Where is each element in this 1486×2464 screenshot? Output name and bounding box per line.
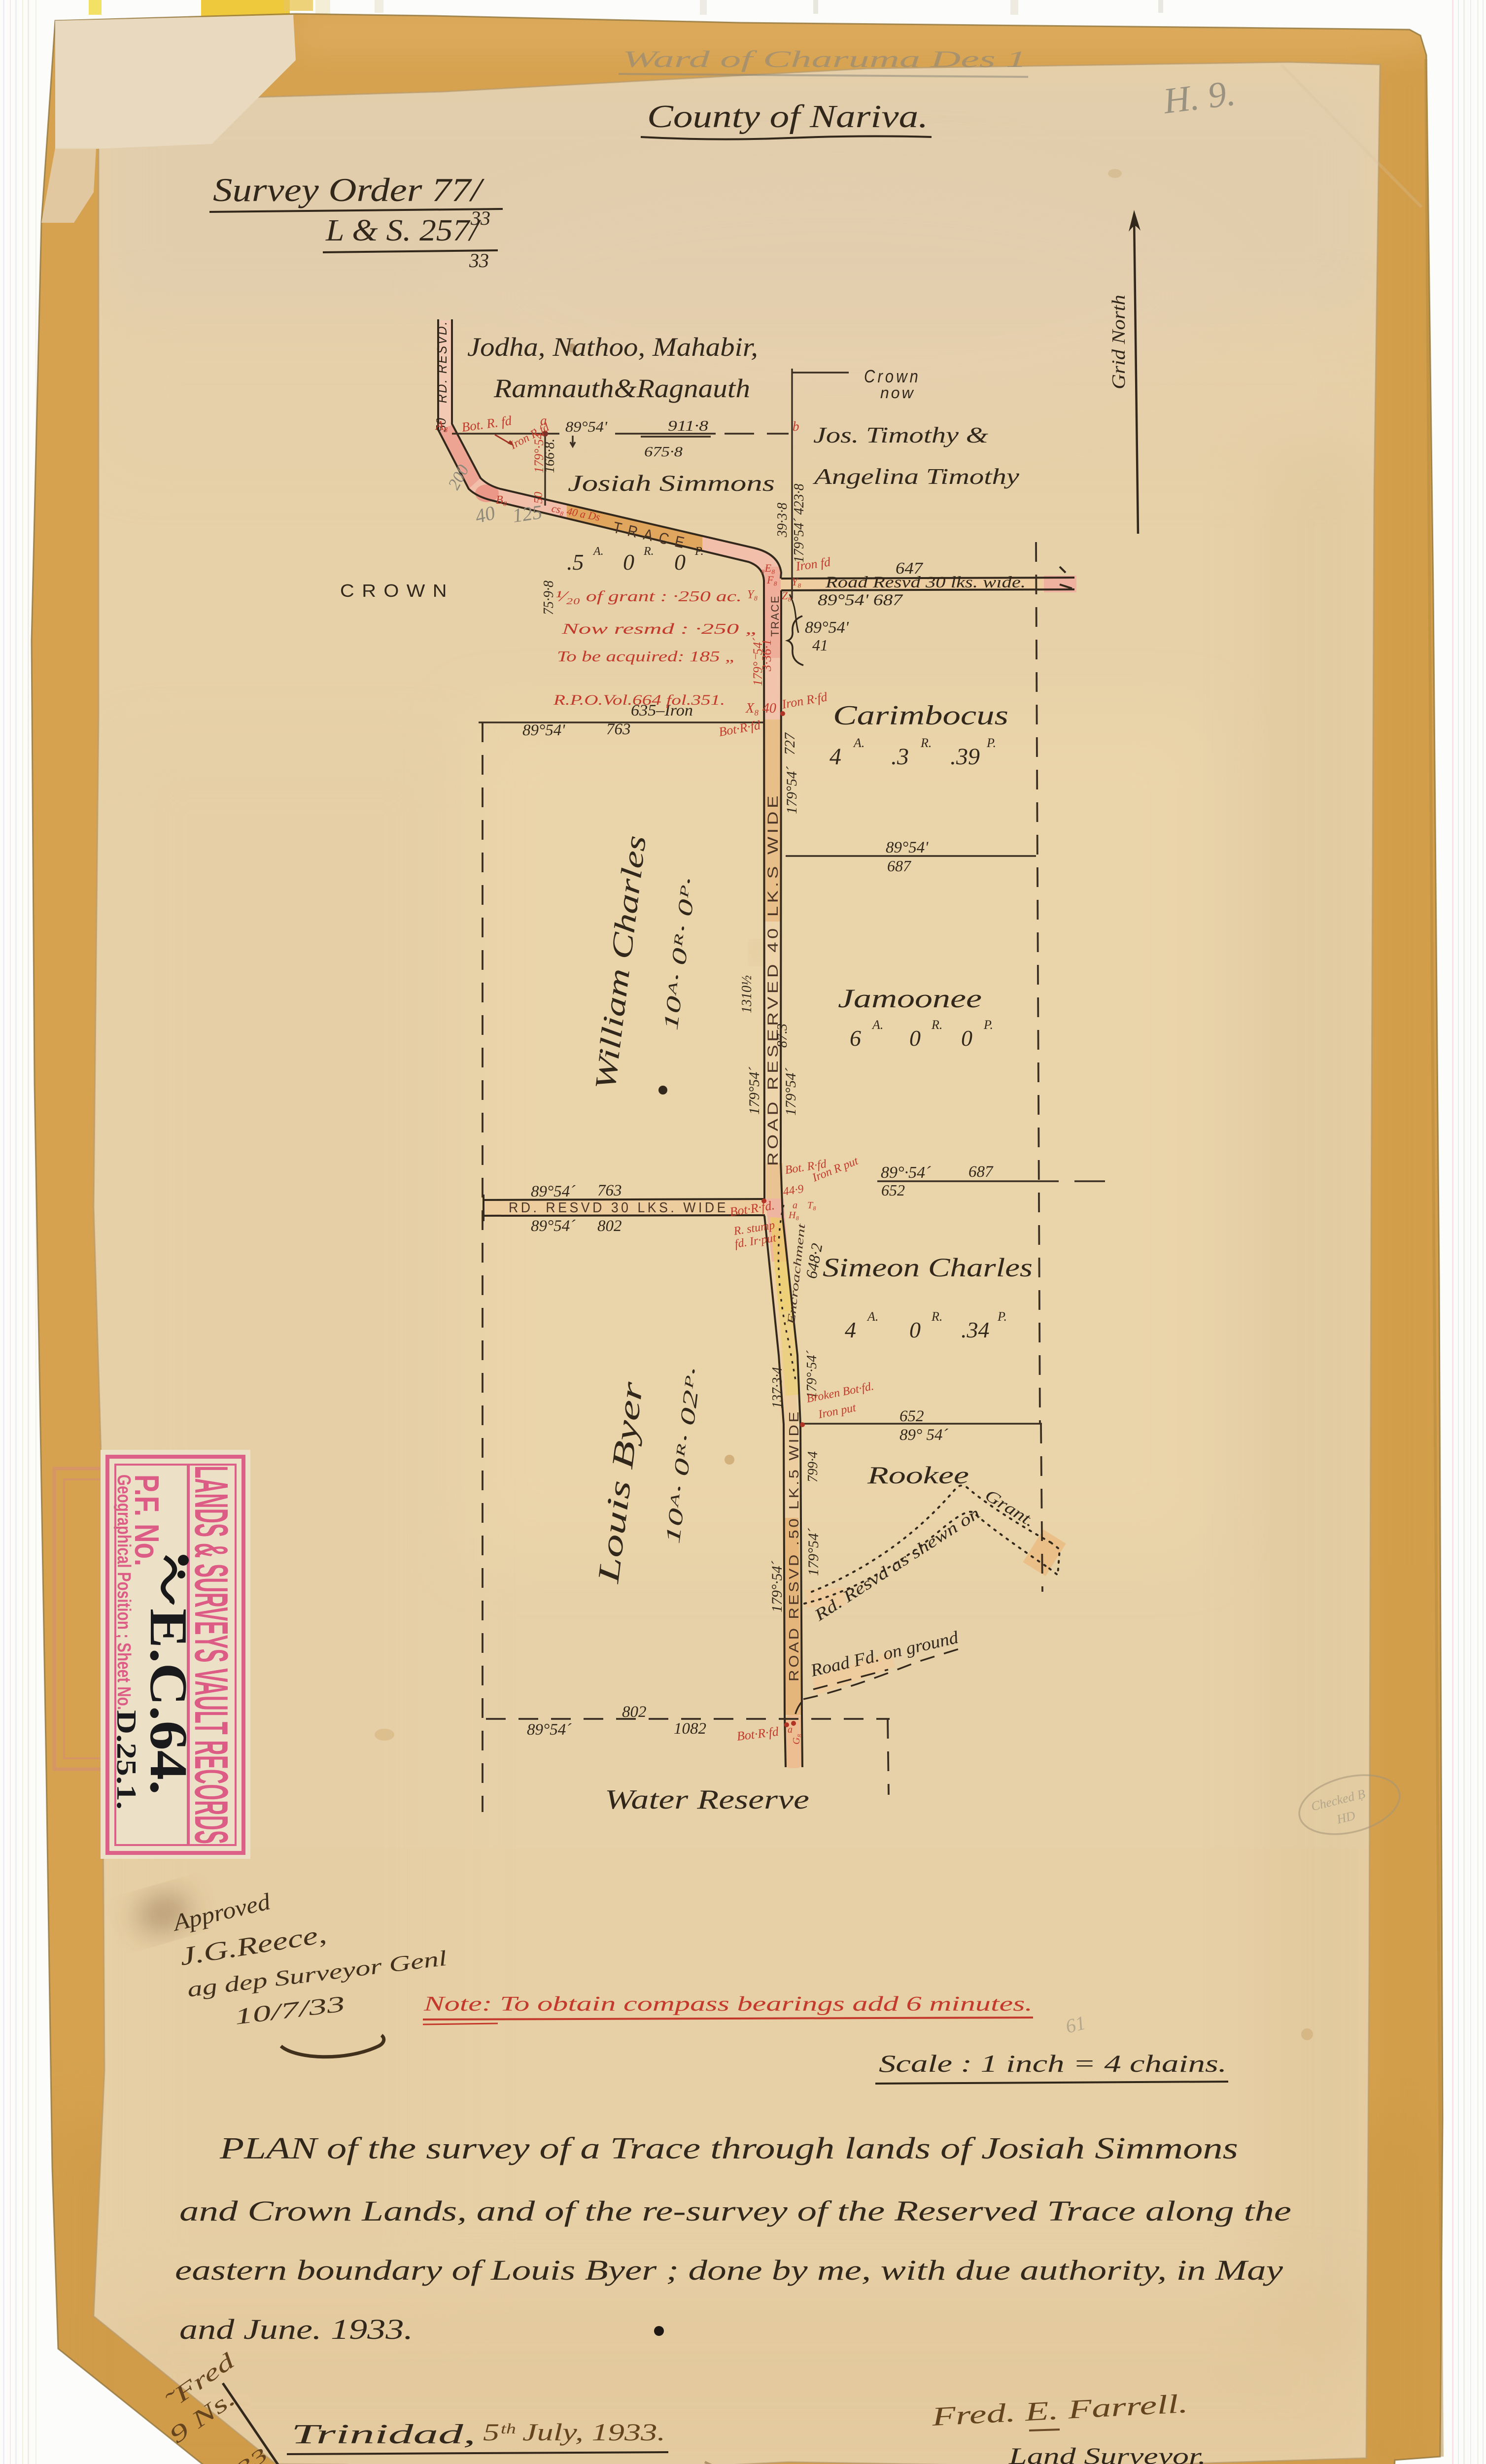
svg-text:R.: R.: [931, 1309, 942, 1324]
svg-text:727: 727: [782, 732, 798, 755]
svg-text:89° 54´: 89° 54´: [899, 1426, 948, 1444]
svg-text:A.: A.: [853, 736, 864, 750]
svg-text:R.: R.: [931, 1018, 942, 1032]
svg-text:41: 41: [812, 636, 828, 654]
svg-text:Jos. Timothy &: Jos. Timothy &: [813, 423, 988, 447]
svg-text:Grid North: Grid North: [1108, 295, 1129, 389]
svg-text:Survey Order 77/: Survey Order 77/: [213, 171, 485, 208]
svg-text:179°54´: 179°54´: [784, 766, 800, 814]
svg-text:.39: .39: [950, 744, 980, 770]
svg-text:Rookee: Rookee: [867, 1461, 969, 1489]
svg-text:0: 0: [674, 549, 686, 575]
svg-text:89°54' 687: 89°54' 687: [818, 591, 903, 609]
svg-text:75·9·8: 75·9·8: [541, 581, 556, 615]
svg-text:179°54´: 179°54´: [746, 1066, 762, 1115]
svg-text:89°54': 89°54': [886, 839, 929, 856]
svg-text:G₈: G₈: [791, 1734, 802, 1745]
svg-text:6: 6: [850, 1026, 861, 1051]
svg-text:A.: A.: [871, 1018, 883, 1032]
svg-text:a: a: [788, 1724, 793, 1735]
svg-text:89°54': 89°54': [522, 721, 565, 739]
svg-text:652: 652: [881, 1181, 905, 1199]
svg-text:P.: P.: [997, 1309, 1007, 1324]
svg-text:TRACE: TRACE: [769, 595, 781, 637]
svg-text:89°54´: 89°54´: [527, 1721, 572, 1739]
svg-text:B₈: B₈: [496, 494, 507, 507]
svg-text:89°·54´: 89°·54´: [881, 1164, 931, 1182]
svg-text:R.P.O.Vol.664 fol.351.: R.P.O.Vol.664 fol.351.: [553, 692, 725, 708]
svg-text:Note: To obtain compass bearin: Note: To obtain compass bearings add 6 m…: [423, 1993, 1033, 2016]
svg-text:39·3·8: 39·3·8: [775, 503, 790, 538]
svg-text:L & S. 257/: L & S. 257/: [325, 214, 481, 247]
svg-text:0: 0: [623, 549, 634, 575]
svg-text:4: 4: [845, 1317, 856, 1342]
svg-text:a: a: [793, 1200, 797, 1211]
svg-text:687: 687: [887, 857, 912, 875]
svg-text:¹⁄₂₀ of grant : ·250 ac.: ¹⁄₂₀ of grant : ·250 ac.: [555, 587, 742, 605]
svg-text:Ramnauth⁠&⁠Ragnauth: Ramnauth⁠&⁠Ragnauth: [493, 374, 750, 403]
svg-text:89°54': 89°54': [805, 618, 849, 637]
svg-text:now: now: [880, 384, 915, 402]
svg-text:Y₈: Y₈: [792, 576, 801, 588]
svg-text:X₈ 40: X₈ 40: [745, 701, 776, 716]
svg-text:P.: P.: [694, 545, 704, 558]
svg-text:eastern boundary of Louis Byer: eastern boundary of Louis Byer ; done by…: [175, 2254, 1283, 2286]
svg-text:Trinidad,: Trinidad,: [291, 2419, 476, 2450]
svg-text:652: 652: [899, 1407, 924, 1425]
svg-text:A.: A.: [592, 545, 604, 558]
svg-text:Geographical Position ; Sheet: Geographical Position ; Sheet No.: [113, 1474, 134, 1710]
svg-text:Jamoonee: Jamoonee: [838, 984, 982, 1013]
svg-text:0: 0: [961, 1026, 972, 1051]
svg-text:Z₈: Z₈: [782, 589, 792, 602]
svg-text:A.: A.: [866, 1309, 878, 1324]
svg-text:1310½: 1310½: [739, 975, 755, 1013]
svg-text:179°54´: 179°54´: [805, 1528, 822, 1576]
svg-text:4: 4: [829, 744, 841, 770]
svg-text:₈E₈: ₈E₈: [761, 562, 775, 574]
svg-text:33: 33: [469, 249, 489, 272]
svg-text:.34: .34: [961, 1317, 990, 1342]
svg-text:To be acquired: 185 „: To be acquired: 185 „: [557, 648, 736, 665]
svg-text:1082: 1082: [674, 1720, 706, 1738]
svg-text:Crown: Crown: [864, 366, 921, 386]
svg-text:Water Reserve: Water Reserve: [605, 1784, 809, 1815]
svg-text:0: 0: [909, 1317, 921, 1342]
svg-text:763: 763: [597, 1182, 622, 1199]
svg-text:R.: R.: [920, 736, 932, 750]
svg-text:Ward of Charuma Des 1: Ward of Charuma Des 1: [622, 46, 1027, 72]
svg-text:675·8: 675·8: [644, 444, 683, 460]
svg-text:5ᵗʰ July, 1933.: 5ᵗʰ July, 1933.: [483, 2418, 665, 2446]
svg-text:T₈: T₈: [807, 1200, 816, 1211]
svg-text:.3: .3: [891, 744, 909, 770]
svg-text:125: 125: [511, 501, 544, 527]
svg-text:Y₈: Y₈: [747, 588, 758, 601]
svg-text:179°54´: 179°54´: [783, 1067, 799, 1116]
svg-text:A₈: A₈: [435, 418, 448, 433]
svg-text:RD. RESVD 30 LKS. WIDE: RD. RESVD 30 LKS. WIDE: [509, 1200, 728, 1216]
svg-text:Josiah Simmons: Josiah Simmons: [568, 471, 775, 496]
svg-text:P.: P.: [986, 736, 996, 750]
svg-text:Angelina Timothy: Angelina Timothy: [812, 464, 1019, 489]
svg-text:87.3: 87.3: [775, 1024, 790, 1048]
svg-text:.5: .5: [567, 549, 584, 575]
svg-text:179°54´ 423·8: 179°54´ 423·8: [792, 483, 807, 563]
svg-text:E.C.64.: E.C.64.: [139, 1608, 198, 1795]
svg-text:D.25.1.: D.25.1.: [111, 1710, 141, 1810]
svg-text:Now resmd : ·250 „: Now resmd : ·250 „: [561, 620, 759, 637]
svg-text:and Crown Lands, and of the re: and Crown Lands, and of the re-survey of…: [179, 2195, 1291, 2227]
svg-text:137·3·4: 137·3·4: [770, 1367, 785, 1408]
svg-text:799·4: 799·4: [805, 1451, 821, 1482]
svg-text:ROAD RESERVED 40 LK.S WIDE: ROAD RESERVED 40 LK.S WIDE: [765, 792, 781, 1166]
svg-text:H₈: H₈: [788, 1210, 799, 1221]
svg-text:RD. RESVD.: RD. RESVD.: [434, 320, 449, 403]
svg-text:179°⁻54´: 179°⁻54´: [751, 637, 765, 686]
svg-text:ROAD RESVD .50 LK.5 WIDE: ROAD RESVD .50 LK.5 WIDE: [786, 1409, 801, 1681]
svg-text:802: 802: [597, 1217, 622, 1235]
svg-text:89°54´: 89°54´: [531, 1183, 576, 1200]
svg-text:687: 687: [968, 1163, 994, 1181]
svg-text:179°·54´: 179°·54´: [532, 428, 546, 473]
svg-text:0: 0: [909, 1026, 921, 1051]
svg-text:Scale : 1 inch = 4 chains.: Scale : 1 inch = 4 chains.: [879, 2050, 1227, 2077]
svg-text:802: 802: [622, 1703, 647, 1721]
svg-text:Carimbocus: Carimbocus: [833, 700, 1008, 731]
svg-text:89°54´: 89°54´: [531, 1217, 576, 1235]
svg-text:P.: P.: [983, 1018, 993, 1032]
svg-text:F₈: F₈: [766, 574, 777, 586]
svg-text:763: 763: [606, 720, 631, 738]
svg-text:PLAN of the survey of a Trace: PLAN of the survey of a Trace through la…: [219, 2132, 1238, 2165]
svg-text:b: b: [793, 419, 799, 434]
svg-text:a: a: [540, 413, 547, 428]
svg-text:R.: R.: [643, 545, 654, 558]
svg-text:County of Nariva.: County of Nariva.: [647, 99, 928, 135]
svg-text:Land Surveyor.: Land Surveyor.: [1008, 2443, 1206, 2464]
svg-text:Simeon Charles: Simeon Charles: [823, 1253, 1033, 1282]
svg-text:89°54': 89°54': [565, 418, 608, 435]
svg-text:CROWN: CROWN: [340, 581, 454, 601]
svg-text:Road Resvd 30 lks. wide.: Road Resvd 30 lks. wide.: [825, 574, 1026, 591]
svg-text:and June. 1933.: and June. 1933.: [179, 2313, 413, 2345]
svg-text:179°·54´: 179°·54´: [769, 1561, 785, 1612]
svg-text:911·8: 911·8: [668, 417, 709, 434]
svg-text:Jodha, Nathoo, Mahabir,: Jodha, Nathoo, Mahabir,: [467, 332, 758, 362]
